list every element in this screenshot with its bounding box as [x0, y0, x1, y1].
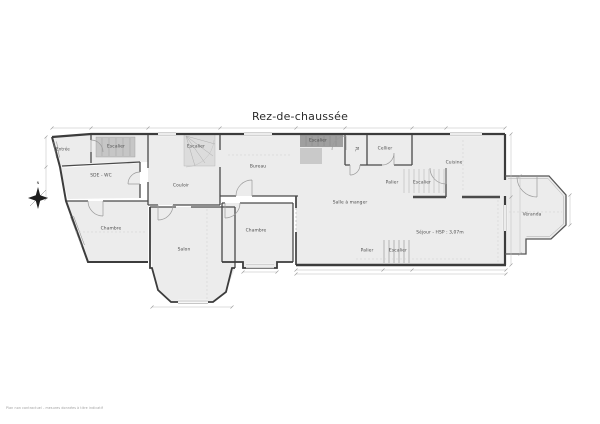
room-label-salon: Salon	[178, 248, 191, 253]
floor-plan-drawing	[0, 0, 600, 424]
room-label-palier-1: Palier	[386, 181, 399, 186]
room-label-escalier-1: Escalier	[107, 145, 125, 150]
room-label-couloir: Couloir	[173, 184, 189, 189]
room-label-escalier-3: Escalier	[309, 139, 327, 144]
room-label-escalier-5: Escalier	[389, 249, 407, 254]
room-label-sejour: Séjour - HSP : 3,07m	[416, 231, 463, 236]
room-label-salle-a-manger: Salle à manger	[333, 201, 368, 206]
room-label-chambre-1: Chambre	[101, 227, 122, 232]
room-label-pl: PL	[355, 147, 360, 152]
room-label-entree: Entrée	[56, 147, 70, 152]
stairs-winder-icon	[184, 134, 215, 166]
room-label-cellier: Cellier	[378, 147, 393, 152]
room-label-bureau: Bureau	[250, 165, 266, 170]
compass-icon	[28, 187, 48, 209]
fine-print: Plan non contractuel - mesures données à…	[6, 406, 103, 410]
room-label-sde-wc: SDE - WC	[90, 174, 112, 179]
room-label-escalier-2: Escalier	[187, 145, 205, 150]
compass-north-label: N	[37, 181, 40, 185]
page-title: Rez-de-chaussée	[252, 110, 348, 123]
room-label-escalier-4: Escalier	[413, 181, 431, 186]
room-label-palier-2: Palier	[361, 249, 374, 254]
room-label-cuisine: Cuisine	[446, 161, 463, 166]
room-label-veranda: Véranda	[523, 213, 542, 218]
floor-plan-page: Rez-de-chaussée N Entrée Escalier SDE - …	[0, 0, 600, 424]
room-label-chambre-2: Chambre	[246, 229, 267, 234]
